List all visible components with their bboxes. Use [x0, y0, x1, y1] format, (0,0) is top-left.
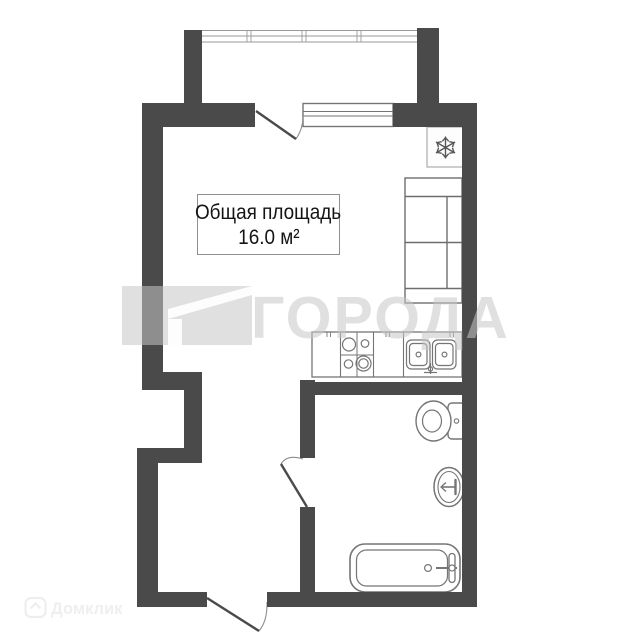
wall-bottom-left [137, 592, 207, 607]
wall-bottom-right [267, 592, 477, 607]
area-label: Общая площадь 16.0 м² [197, 194, 340, 255]
balcony-door-icon [256, 111, 303, 139]
area-label-title: Общая площадь [195, 200, 341, 224]
entrance-door-icon [207, 598, 267, 631]
wall-balcony-right [417, 28, 439, 105]
wall-bathroom-top [300, 382, 462, 395]
wall-right [462, 103, 477, 607]
toilet-icon [416, 401, 465, 441]
wall-inner-upper [300, 380, 315, 458]
fridge-icon [427, 127, 465, 167]
bathroom-door-icon [281, 457, 307, 507]
sofa-icon [405, 178, 462, 303]
wall-left-lower [137, 448, 158, 607]
washbasin-icon [434, 468, 464, 507]
window-icon [303, 104, 393, 127]
wall-balcony-left [184, 30, 202, 105]
kitchen-counter [312, 332, 462, 377]
bathtub-icon [350, 544, 460, 592]
area-label-value: 16.0 м² [238, 225, 299, 249]
wall-inner-lower [300, 507, 315, 607]
floor-plan-fixtures-layer [0, 0, 640, 640]
floor-plan-image: Общая площадь 16.0 м² ГОРОДА Домклик [0, 0, 640, 640]
balcony-glazing-icon [189, 31, 420, 43]
wall-left-upper [142, 103, 163, 390]
